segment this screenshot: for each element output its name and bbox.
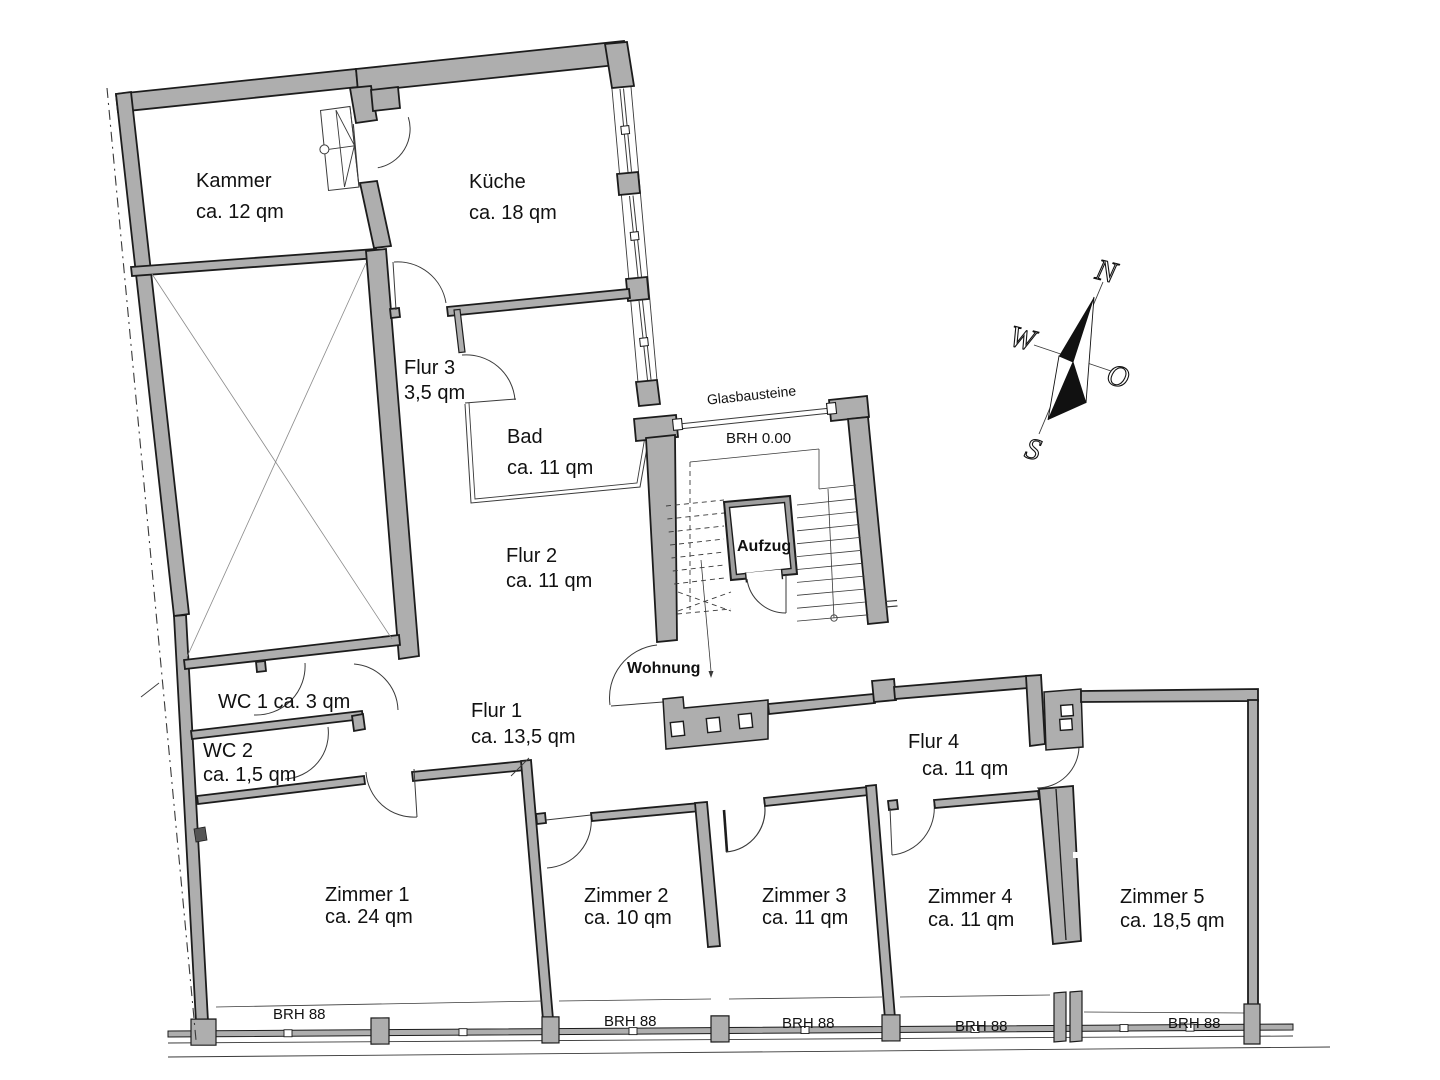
svg-text:Aufzug: Aufzug — [737, 538, 791, 555]
svg-text:Flur 2: Flur 2 — [506, 545, 557, 567]
svg-text:BRH 88: BRH 88 — [782, 1015, 835, 1032]
svg-text:ca. 24 qm: ca. 24 qm — [325, 906, 413, 928]
svg-text:WC 2: WC 2 — [203, 740, 253, 762]
svg-text:Flur 1: Flur 1 — [471, 700, 522, 722]
svg-text:ca. 18 qm: ca. 18 qm — [469, 202, 557, 224]
svg-text:ca. 10 qm: ca. 10 qm — [584, 907, 672, 929]
svg-text:ca. 11 qm: ca. 11 qm — [506, 570, 592, 592]
svg-text:ca. 11 qm: ca. 11 qm — [507, 457, 593, 479]
svg-text:BRH 88: BRH 88 — [273, 1006, 326, 1023]
svg-text:BRH 88: BRH 88 — [604, 1013, 657, 1030]
svg-text:Bad: Bad — [507, 426, 543, 448]
svg-text:WC 1 ca. 3 qm: WC 1 ca. 3 qm — [218, 691, 350, 713]
svg-text:ca. 11 qm: ca. 11 qm — [928, 909, 1014, 931]
svg-text:Zimmer 3: Zimmer 3 — [762, 885, 846, 907]
svg-text:ca. 11 qm: ca. 11 qm — [922, 758, 1008, 780]
svg-text:Kammer: Kammer — [196, 170, 272, 192]
svg-text:Zimmer 1: Zimmer 1 — [325, 884, 409, 906]
svg-text:ca. 1,5 qm: ca. 1,5 qm — [203, 764, 296, 786]
svg-text:ca. 12 qm: ca. 12 qm — [196, 201, 284, 223]
svg-text:BRH 0.00: BRH 0.00 — [726, 430, 791, 447]
svg-text:Wohnung: Wohnung — [627, 660, 700, 677]
svg-text:ca. 11 qm: ca. 11 qm — [762, 907, 848, 929]
svg-text:Flur 4: Flur 4 — [908, 731, 959, 753]
svg-text:ca. 13,5 qm: ca. 13,5 qm — [471, 726, 576, 748]
svg-text:Flur 3: Flur 3 — [404, 357, 455, 379]
svg-text:Zimmer 4: Zimmer 4 — [928, 886, 1012, 908]
svg-text:Zimmer 2: Zimmer 2 — [584, 885, 668, 907]
svg-text:3,5 qm: 3,5 qm — [404, 382, 465, 404]
svg-text:BRH 88: BRH 88 — [955, 1018, 1008, 1035]
svg-text:BRH 88: BRH 88 — [1168, 1015, 1221, 1032]
svg-text:Küche: Küche — [469, 171, 526, 193]
svg-text:ca. 18,5 qm: ca. 18,5 qm — [1120, 910, 1225, 932]
svg-text:Zimmer 5: Zimmer 5 — [1120, 886, 1204, 908]
